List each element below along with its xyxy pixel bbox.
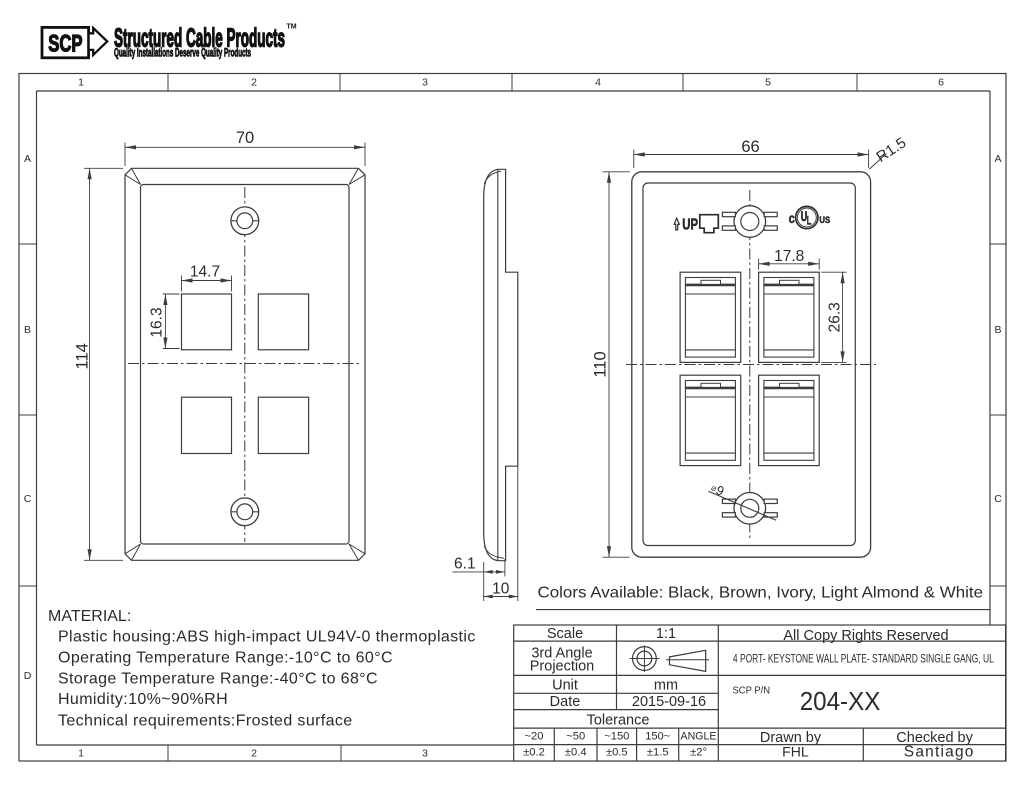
svg-text:1: 1	[78, 748, 84, 760]
svg-text:6.1: 6.1	[454, 555, 476, 572]
svg-text:ANGLE: ANGLE	[681, 731, 717, 743]
svg-text:C: C	[24, 493, 32, 505]
svg-text:70: 70	[236, 129, 254, 147]
svg-text:14.7: 14.7	[190, 264, 220, 281]
svg-text:Colors Available: Black, Brow: Colors Available: Black, Brown, Ivory, L…	[538, 584, 983, 601]
svg-text:C: C	[994, 493, 1002, 505]
svg-text:2015-09-16: 2015-09-16	[632, 694, 706, 710]
svg-text:3: 3	[422, 77, 428, 89]
svg-text:MATERIAL:: MATERIAL:	[48, 608, 131, 625]
svg-text:Tolerance: Tolerance	[587, 713, 650, 729]
svg-text:204-XX: 204-XX	[800, 687, 881, 716]
svg-text:Date: Date	[550, 694, 581, 710]
svg-text:mm: mm	[654, 678, 678, 694]
svg-text:A: A	[24, 153, 31, 165]
svg-text:3: 3	[422, 748, 428, 760]
svg-text:Quality Installations Deserve: Quality Installations Deserve Quality Pr…	[114, 47, 251, 59]
svg-text:All Copy Rights Reserved: All Copy Rights Reserved	[783, 628, 948, 644]
svg-text:4: 4	[595, 77, 601, 89]
svg-text:Plastic housing:ABS high-impac: Plastic housing:ABS high-impact UL94V-0 …	[58, 628, 476, 645]
svg-text:D: D	[24, 670, 32, 682]
svg-text:1:1: 1:1	[656, 626, 676, 642]
svg-text:FHL: FHL	[782, 743, 809, 759]
svg-text:17.8: 17.8	[774, 248, 804, 265]
svg-text:±1.5: ±1.5	[647, 747, 669, 759]
svg-text:1: 1	[78, 77, 84, 89]
svg-text:±0.5: ±0.5	[606, 747, 628, 759]
svg-text:Scale: Scale	[547, 626, 583, 642]
svg-text:A: A	[994, 153, 1001, 165]
svg-text:26.3: 26.3	[827, 302, 844, 332]
svg-text:2: 2	[251, 77, 257, 89]
svg-text:TM: TM	[287, 24, 297, 31]
svg-text:B: B	[24, 324, 31, 336]
svg-text:66: 66	[741, 138, 759, 156]
svg-text:±0.4: ±0.4	[565, 747, 587, 759]
svg-text:SCP P/N: SCP P/N	[733, 685, 771, 697]
svg-text:±2°: ±2°	[690, 747, 707, 759]
svg-text:5: 5	[765, 77, 771, 89]
svg-text:Technical requirements:Frosted: Technical requirements:Frosted surface	[58, 712, 353, 729]
svg-text:L: L	[807, 215, 812, 228]
svg-text:Humidity:10%~90%RH: Humidity:10%~90%RH	[58, 691, 228, 708]
svg-text:SCP: SCP	[48, 31, 82, 58]
svg-text:6: 6	[938, 77, 944, 89]
svg-text:UP: UP	[682, 216, 698, 233]
svg-text:2: 2	[251, 748, 257, 760]
svg-text:US: US	[819, 214, 830, 225]
svg-text:Projection: Projection	[530, 658, 594, 674]
svg-text:±0.2: ±0.2	[523, 747, 545, 759]
svg-text:~150: ~150	[604, 731, 629, 743]
svg-text:110: 110	[592, 351, 610, 377]
svg-text:B: B	[994, 324, 1001, 336]
svg-text:Storage Temperature Range:-40°: Storage Temperature Range:-40°C to 68°C	[58, 671, 378, 688]
svg-text:Unit: Unit	[552, 678, 578, 694]
svg-text:Santiago: Santiago	[904, 743, 975, 760]
svg-text:c: c	[789, 211, 795, 226]
svg-text:114: 114	[74, 343, 92, 369]
svg-text:Operating Temperature Range:-1: Operating Temperature Range:-10°C to 60°…	[58, 649, 393, 666]
svg-text:U: U	[801, 210, 807, 224]
svg-text:~50: ~50	[566, 731, 585, 743]
svg-text:10: 10	[492, 581, 510, 598]
svg-text:150~: 150~	[645, 731, 671, 743]
svg-text:4 PORT- KEYSTONE WALL PLATE- S: 4 PORT- KEYSTONE WALL PLATE- STANDARD SI…	[733, 653, 994, 666]
svg-text:16.3: 16.3	[149, 307, 166, 337]
svg-text:~20: ~20	[525, 731, 544, 743]
